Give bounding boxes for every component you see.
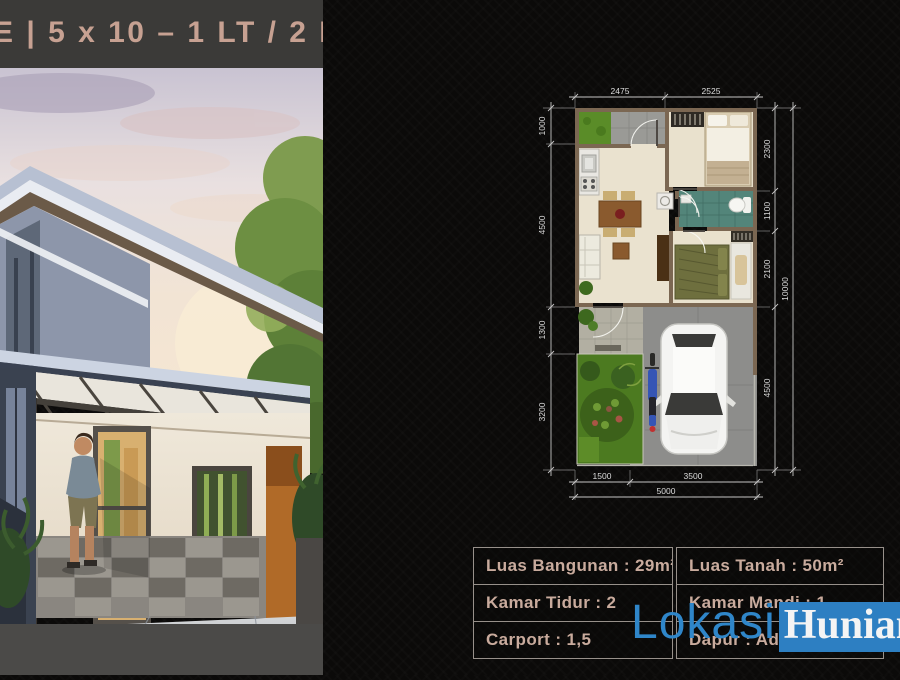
dim-right-2: 1100 (762, 202, 772, 221)
car-icon (652, 324, 736, 454)
dim-left-1: 1000 (537, 116, 547, 135)
dim-top-2: 2525 (702, 86, 721, 96)
dim-right-1: 2300 (762, 139, 772, 158)
spec-kamar-mandi: Kamar Mandi : 1 (677, 585, 883, 622)
spec-table-right: Luas Tanah : 50m² Kamar Mandi : 1 Dapur … (676, 547, 884, 659)
dim-bottom-total: 5000 (657, 486, 676, 496)
spec-carport: Carport : 1,5 (474, 622, 672, 658)
floor-plan-svg: 2475 2525 1000 4500 1300 3200 2300 1100 … (535, 85, 815, 500)
bedroom2-bed (675, 245, 729, 299)
plant (579, 281, 593, 295)
floor-plan: 2475 2525 1000 4500 1300 3200 2300 1100 … (535, 85, 815, 500)
bedroom1-wardrobe (671, 112, 704, 127)
kitchen (579, 149, 599, 195)
type-header-bar: E | 5 x 10 – 1 LT / 2 KT (0, 0, 323, 68)
spec-dapur: Dapur : Ada (677, 622, 883, 658)
washing-machine (657, 193, 673, 209)
entry-court (579, 112, 665, 144)
house-render-svg (0, 68, 323, 675)
house-render-photo (0, 68, 323, 675)
bedroom2-wardrobe (731, 231, 753, 242)
house-type-title: E | 5 x 10 – 1 LT / 2 KT (0, 0, 323, 66)
dim-left-3: 1300 (537, 320, 547, 339)
spec-luas-tanah: Luas Tanah : 50m² (677, 548, 883, 585)
dim-right-total: 10000 (780, 277, 790, 301)
sofa (579, 235, 600, 279)
dim-left-2: 4500 (537, 215, 547, 234)
garden (577, 354, 643, 464)
dim-bottom-2: 3500 (684, 471, 703, 481)
bedroom1-bed (705, 112, 751, 186)
dim-right-4: 4500 (762, 378, 772, 397)
side-stool (613, 243, 629, 259)
dim-top-1: 2475 (611, 86, 630, 96)
dim-left-4: 3200 (537, 402, 547, 421)
spec-table-left: Luas Bangunan : 29m² Kamar Tidur : 2 Car… (473, 547, 673, 659)
dim-right-3: 2100 (762, 259, 772, 278)
tv-cabinet (657, 235, 669, 281)
dim-bottom-1: 1500 (593, 471, 612, 481)
doormat (595, 345, 621, 351)
plan-body (575, 108, 757, 466)
spec-luas-bangunan: Luas Bangunan : 29m² (474, 548, 672, 585)
spec-kamar-tidur: Kamar Tidur : 2 (474, 585, 672, 622)
